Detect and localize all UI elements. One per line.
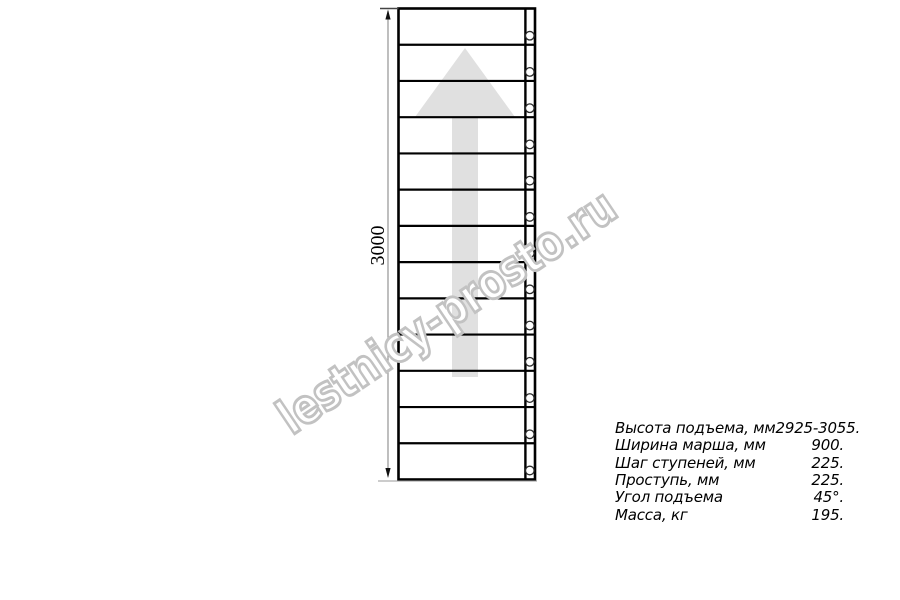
spec-value: 2925-3055. bbox=[776, 420, 861, 437]
spec-label: Масса, кг bbox=[615, 507, 688, 524]
spec-label: Угол подъема bbox=[615, 489, 723, 506]
spec-label: Проступь, мм bbox=[615, 472, 719, 489]
spec-value: 225. bbox=[811, 472, 844, 489]
specs-table: Высота подъема, мм2925-3055.Ширина марша… bbox=[615, 420, 844, 524]
bolt-hole bbox=[526, 68, 535, 77]
bolt-hole bbox=[526, 466, 535, 475]
spec-label: Шаг ступеней, мм bbox=[615, 455, 756, 472]
bolt-hole bbox=[526, 358, 535, 367]
spec-value: 45°. bbox=[813, 489, 844, 506]
bolt-hole bbox=[526, 140, 535, 149]
spec-label: Ширина марша, мм bbox=[615, 437, 766, 454]
spec-row: Масса, кг195. bbox=[615, 507, 844, 524]
bolt-hole bbox=[526, 394, 535, 403]
spec-value: 195. bbox=[811, 507, 844, 524]
spec-value: 225. bbox=[811, 455, 844, 472]
spec-row: Проступь, мм225. bbox=[615, 472, 844, 489]
bolt-hole bbox=[526, 321, 535, 330]
spec-row: Шаг ступеней, мм225. bbox=[615, 455, 844, 472]
spec-label: Высота подъема, мм bbox=[615, 420, 776, 437]
dimension-arrowhead-bottom-icon bbox=[385, 468, 390, 478]
bolt-hole bbox=[526, 104, 535, 113]
bolt-hole bbox=[526, 31, 535, 40]
spec-row: Высота подъема, мм2925-3055. bbox=[615, 420, 844, 437]
spec-row: Угол подъема45°. bbox=[615, 489, 844, 506]
dimension-arrowhead-top-icon bbox=[385, 10, 390, 20]
bolt-hole bbox=[526, 430, 535, 439]
drawing-canvas: 3000 lestnicy-prosto.ru Высота подъема, … bbox=[0, 0, 900, 600]
spec-row: Ширина марша, мм900. bbox=[615, 437, 844, 454]
dimension-label: 3000 bbox=[367, 226, 389, 266]
bolt-hole bbox=[526, 176, 535, 185]
spec-value: 900. bbox=[811, 437, 844, 454]
